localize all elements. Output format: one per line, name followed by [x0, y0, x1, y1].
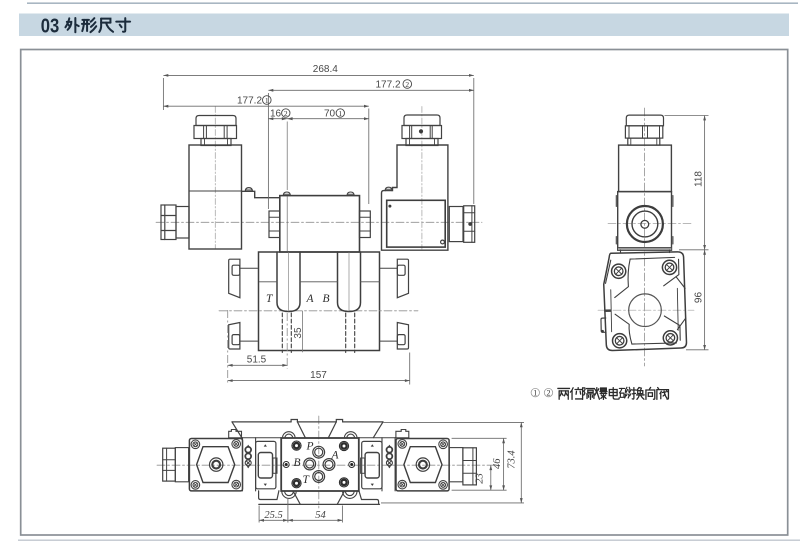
svg-text:B: B: [323, 293, 330, 305]
svg-text:1: 1: [533, 389, 537, 398]
svg-text:46: 46: [492, 458, 503, 469]
svg-text:177.2: 177.2: [237, 96, 262, 107]
svg-text:96: 96: [694, 292, 705, 304]
svg-text:16: 16: [270, 109, 282, 120]
svg-text:157: 157: [310, 370, 327, 381]
svg-text:2: 2: [405, 80, 409, 89]
svg-text:25.5: 25.5: [264, 510, 282, 521]
svg-text:73.4: 73.4: [506, 450, 517, 469]
svg-text:118: 118: [694, 171, 705, 187]
svg-text:70: 70: [324, 109, 336, 120]
svg-text:03: 03: [41, 15, 60, 38]
svg-text:51.5: 51.5: [247, 355, 267, 366]
svg-text:P: P: [306, 441, 314, 453]
svg-text:1: 1: [338, 109, 342, 118]
svg-text:2: 2: [547, 389, 551, 398]
svg-text:1: 1: [265, 96, 269, 105]
svg-text:54: 54: [315, 510, 326, 521]
svg-text:A: A: [306, 293, 315, 305]
svg-text:B: B: [294, 457, 301, 469]
svg-text:23: 23: [475, 473, 486, 484]
svg-text:2: 2: [284, 109, 288, 118]
svg-text:35: 35: [293, 327, 304, 339]
svg-text:A: A: [331, 450, 340, 462]
svg-text:177.2: 177.2: [375, 80, 400, 91]
svg-text:268.4: 268.4: [313, 64, 338, 75]
